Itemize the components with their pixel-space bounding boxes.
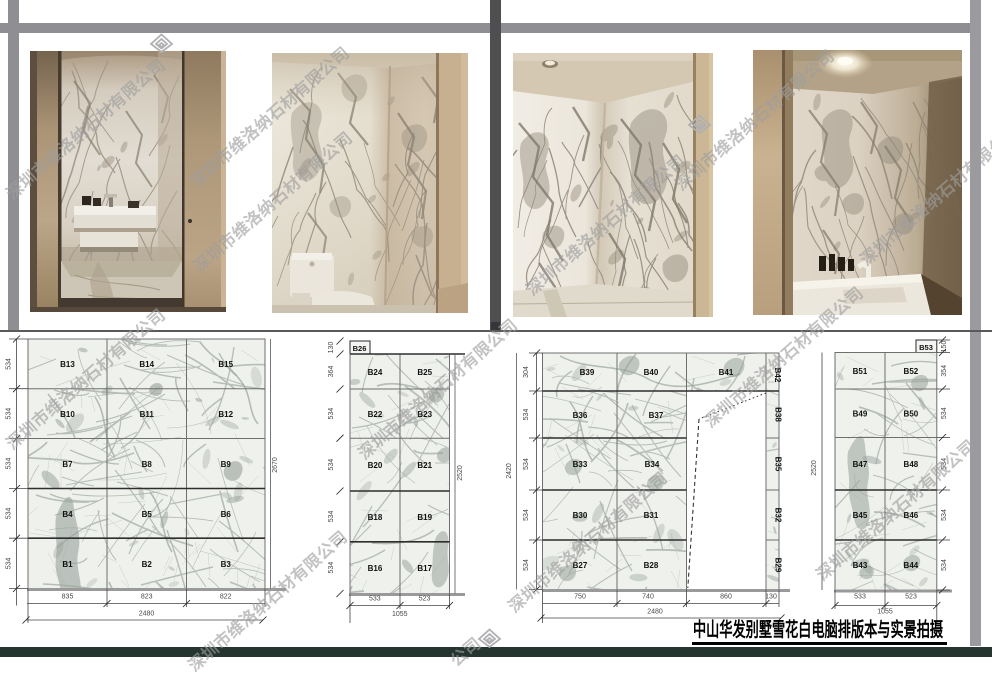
svg-text:B4: B4	[62, 510, 73, 519]
svg-text:B22: B22	[368, 410, 383, 419]
svg-text:534: 534	[523, 509, 530, 521]
svg-text:B14: B14	[139, 360, 154, 369]
svg-text:B10: B10	[60, 410, 75, 419]
svg-text:B7: B7	[62, 460, 73, 469]
svg-text:B36: B36	[573, 411, 588, 420]
svg-text:B29: B29	[774, 558, 783, 573]
svg-text:B40: B40	[644, 368, 659, 377]
svg-text:B19: B19	[417, 513, 432, 522]
svg-text:B47: B47	[853, 460, 868, 469]
svg-text:534: 534	[6, 408, 13, 420]
svg-text:534: 534	[328, 459, 335, 471]
svg-text:B26: B26	[353, 344, 367, 353]
svg-text:822: 822	[220, 594, 232, 601]
svg-text:B1: B1	[62, 560, 73, 569]
svg-text:B5: B5	[142, 510, 153, 519]
svg-text:B8: B8	[142, 460, 153, 469]
svg-text:B2: B2	[142, 560, 153, 569]
svg-text:B11: B11	[140, 410, 155, 419]
svg-text:B32: B32	[774, 508, 783, 523]
svg-text:B44: B44	[904, 561, 919, 570]
svg-text:130: 130	[765, 594, 777, 601]
svg-text:130: 130	[328, 342, 335, 354]
svg-text:534: 534	[523, 409, 530, 421]
svg-text:B45: B45	[853, 511, 868, 520]
svg-text:B35: B35	[774, 457, 783, 472]
svg-text:B9: B9	[221, 460, 232, 469]
svg-text:B28: B28	[644, 561, 659, 570]
svg-text:364: 364	[328, 366, 335, 378]
svg-text:B18: B18	[368, 513, 383, 522]
svg-text:B21: B21	[417, 461, 432, 470]
svg-text:B34: B34	[645, 460, 660, 469]
svg-text:B46: B46	[904, 511, 919, 520]
svg-text:2520: 2520	[811, 460, 818, 476]
svg-text:2420: 2420	[506, 463, 513, 479]
svg-text:B52: B52	[904, 367, 919, 376]
svg-text:B51: B51	[853, 367, 868, 376]
svg-text:534: 534	[328, 562, 335, 574]
svg-text:534: 534	[328, 408, 335, 420]
svg-text:B30: B30	[573, 511, 588, 520]
svg-text:534: 534	[6, 358, 13, 370]
svg-text:304: 304	[523, 366, 530, 378]
svg-text:1055: 1055	[877, 609, 893, 616]
svg-text:B31: B31	[644, 511, 659, 520]
svg-text:823: 823	[141, 594, 153, 601]
svg-text:2480: 2480	[647, 609, 663, 616]
svg-text:B49: B49	[853, 410, 868, 419]
svg-text:B42: B42	[773, 368, 782, 383]
svg-text:534: 534	[6, 557, 13, 569]
svg-text:835: 835	[62, 594, 74, 601]
svg-text:2520: 2520	[457, 465, 464, 481]
svg-text:740: 740	[642, 594, 654, 601]
svg-text:B25: B25	[417, 368, 432, 377]
svg-text:534: 534	[328, 510, 335, 522]
svg-text:B48: B48	[904, 460, 919, 469]
svg-text:523: 523	[905, 594, 917, 601]
svg-text:B27: B27	[573, 561, 588, 570]
svg-text:534: 534	[523, 559, 530, 571]
svg-text:B23: B23	[417, 410, 432, 419]
svg-text:534: 534	[941, 407, 948, 419]
svg-text:B24: B24	[368, 368, 383, 377]
svg-text:523: 523	[419, 596, 431, 603]
svg-text:860: 860	[720, 594, 732, 601]
svg-text:534: 534	[941, 509, 948, 521]
svg-text:534: 534	[6, 507, 13, 519]
svg-text:B53: B53	[919, 343, 933, 352]
svg-text:B3: B3	[221, 560, 232, 569]
svg-text:B50: B50	[904, 410, 919, 419]
svg-text:B43: B43	[853, 561, 868, 570]
svg-text:534: 534	[941, 458, 948, 470]
svg-text:2480: 2480	[139, 611, 155, 618]
svg-text:B15: B15	[218, 360, 233, 369]
svg-text:B6: B6	[221, 510, 232, 519]
svg-text:B13: B13	[60, 360, 75, 369]
svg-text:750: 750	[574, 594, 586, 601]
svg-text:533: 533	[369, 596, 381, 603]
svg-text:B37: B37	[649, 411, 664, 420]
svg-text:534: 534	[523, 458, 530, 470]
svg-text:354: 354	[941, 365, 948, 377]
svg-text:B17: B17	[417, 564, 432, 573]
svg-text:533: 533	[854, 594, 866, 601]
svg-text:534: 534	[6, 458, 13, 470]
svg-text:B39: B39	[580, 368, 595, 377]
svg-text:B41: B41	[719, 368, 734, 377]
svg-text:B12: B12	[218, 410, 233, 419]
svg-text:B16: B16	[368, 564, 383, 573]
svg-text:2670: 2670	[272, 457, 279, 473]
svg-text:B38: B38	[774, 407, 783, 422]
svg-text:534: 534	[941, 559, 948, 571]
svg-text:1055: 1055	[392, 611, 408, 618]
svg-text:B20: B20	[368, 461, 383, 470]
svg-text:B33: B33	[573, 460, 588, 469]
